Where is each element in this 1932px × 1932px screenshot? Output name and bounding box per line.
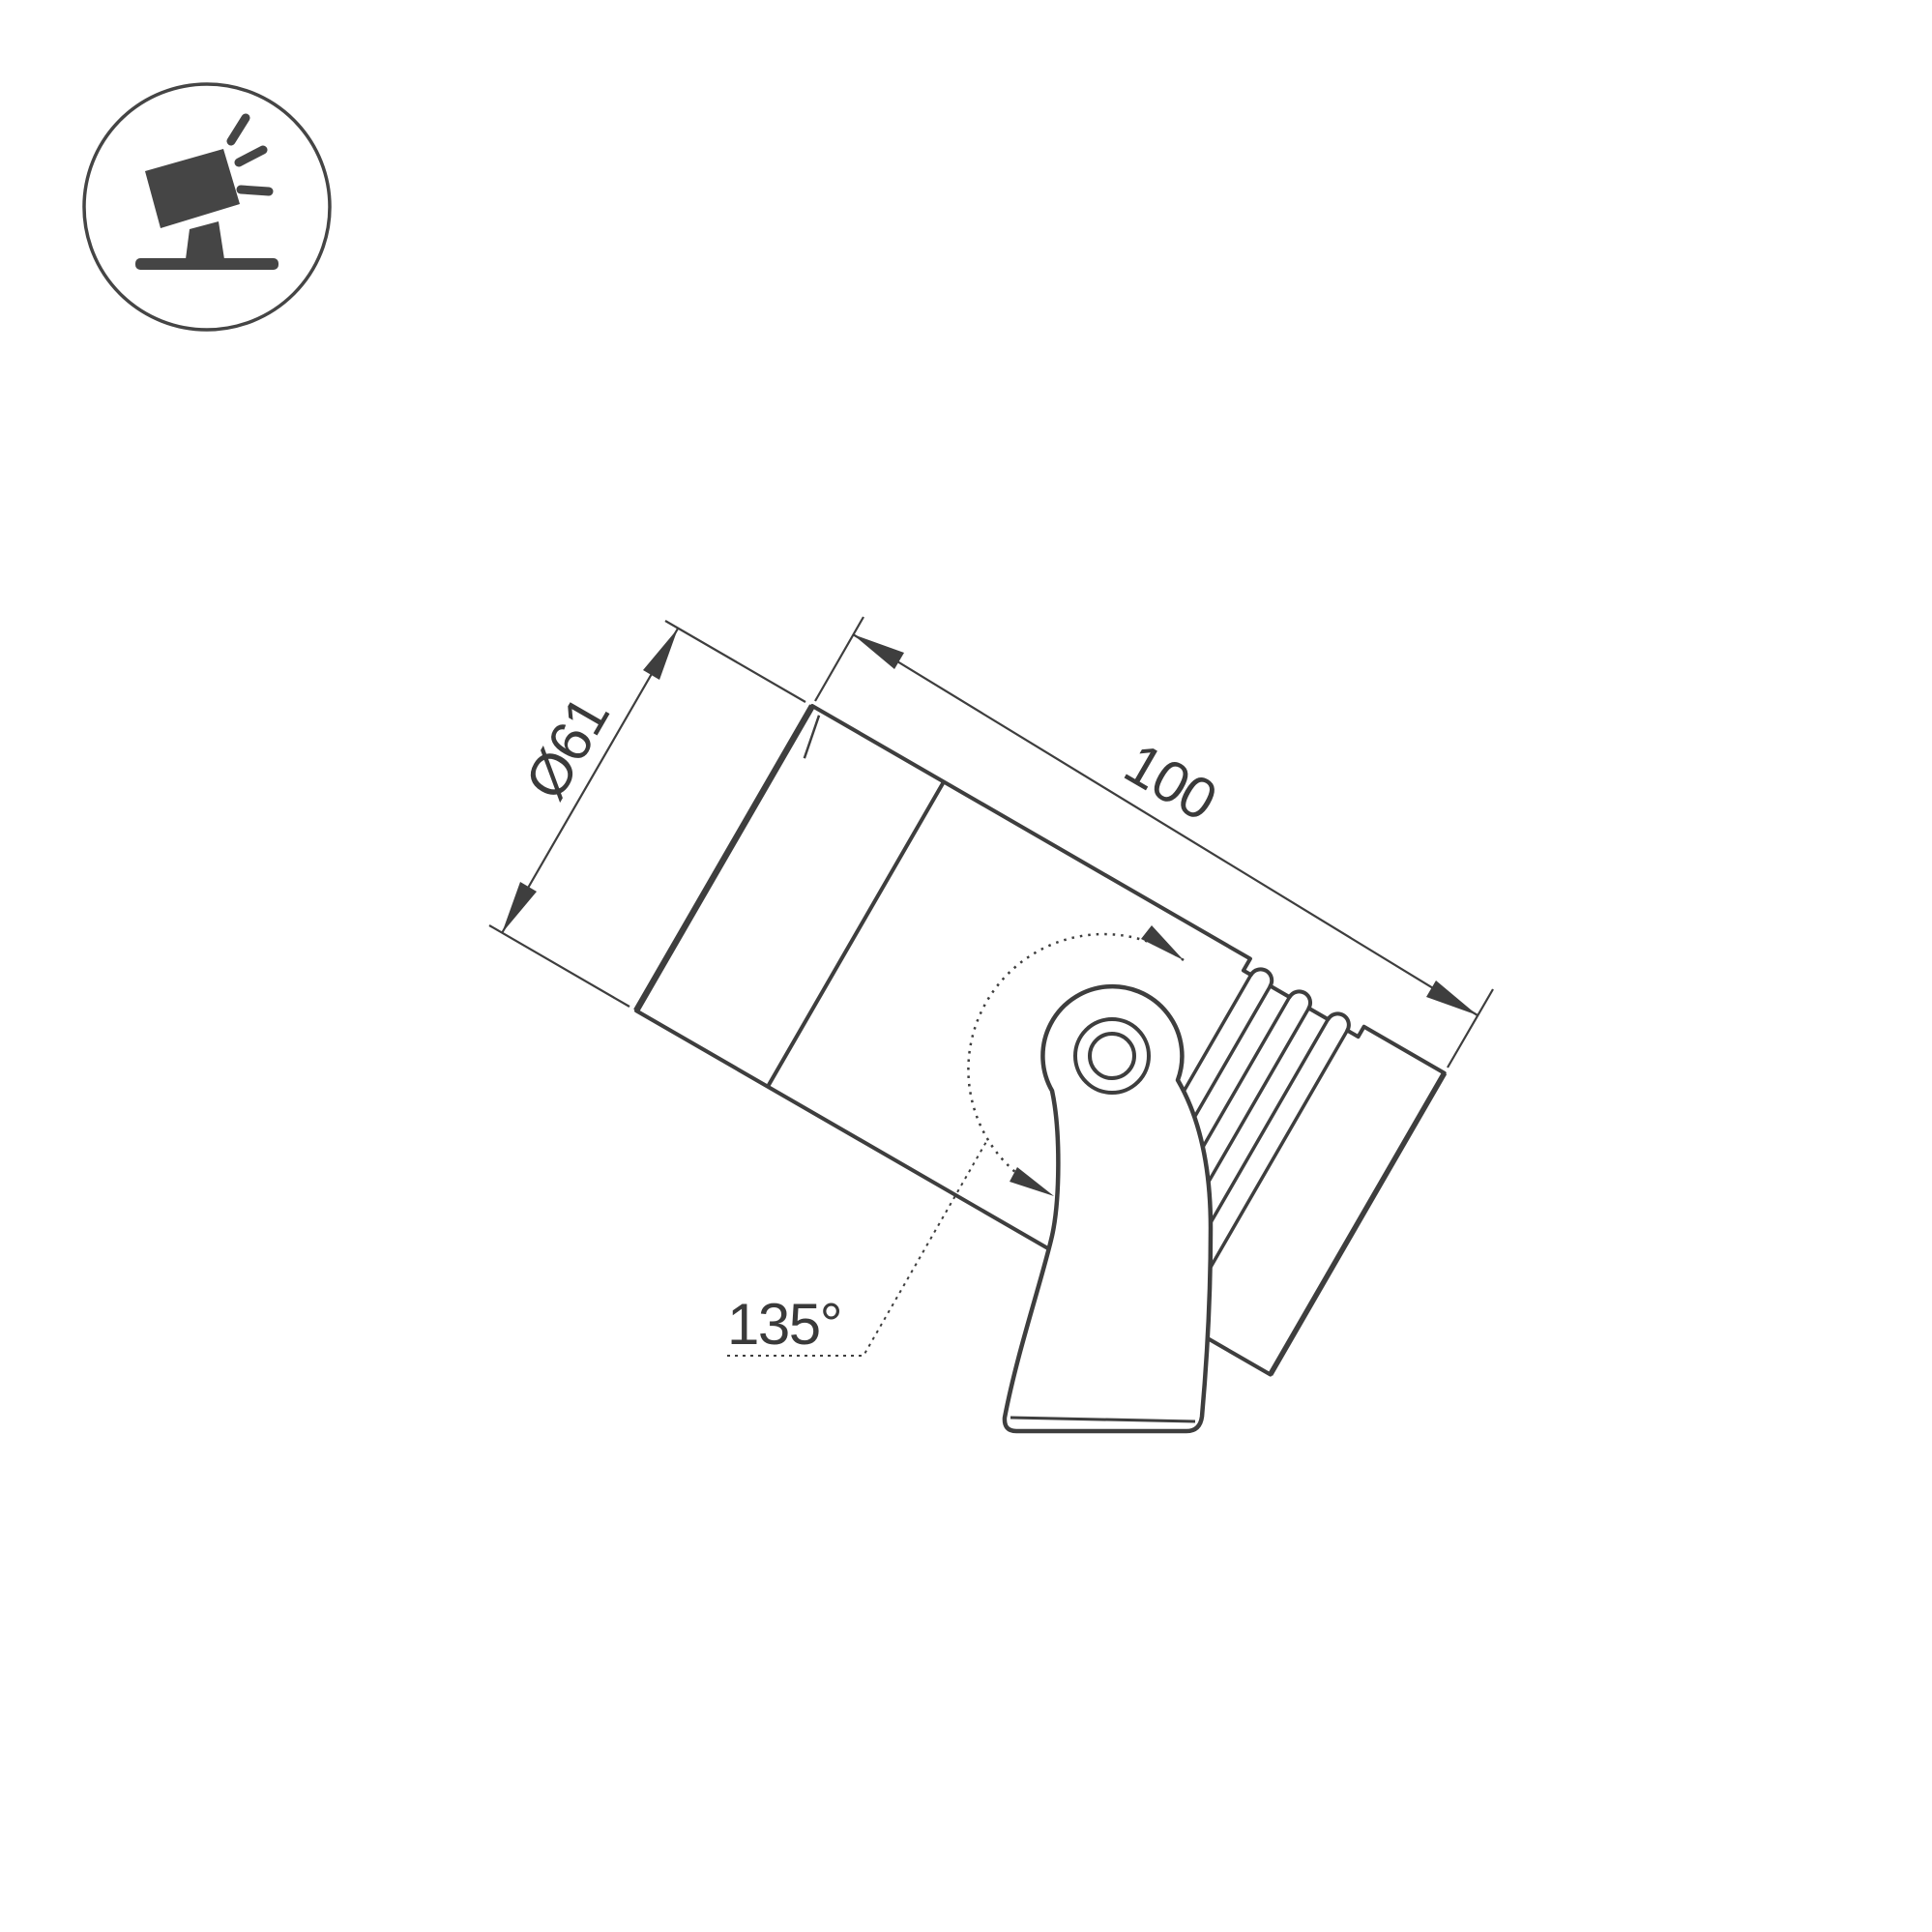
spotlight-head-glyph (145, 149, 240, 228)
light-ray-icon (231, 118, 246, 141)
dimension-arrowhead (502, 882, 537, 933)
page: 135° Ø61 100 (0, 0, 1932, 1932)
dimension-arrowhead (1426, 981, 1478, 1015)
dimension-diagram: 135° Ø61 100 (0, 0, 1932, 1932)
diameter-label: Ø61 (512, 687, 621, 810)
extension-line (665, 621, 805, 702)
length-label: 100 (1114, 730, 1226, 833)
spotlight-stem-glyph (186, 221, 224, 259)
extension-line (815, 617, 864, 701)
dimension-arrowhead (643, 629, 678, 680)
extension-line (489, 925, 629, 1007)
tilted-spotlight-icon (84, 84, 330, 330)
rotation-angle-label: 135° (727, 1292, 841, 1357)
dimension-arrowhead (853, 634, 904, 669)
light-ray-icon (241, 190, 269, 191)
ground-line-glyph (135, 258, 278, 270)
light-ray-icon (239, 150, 263, 162)
